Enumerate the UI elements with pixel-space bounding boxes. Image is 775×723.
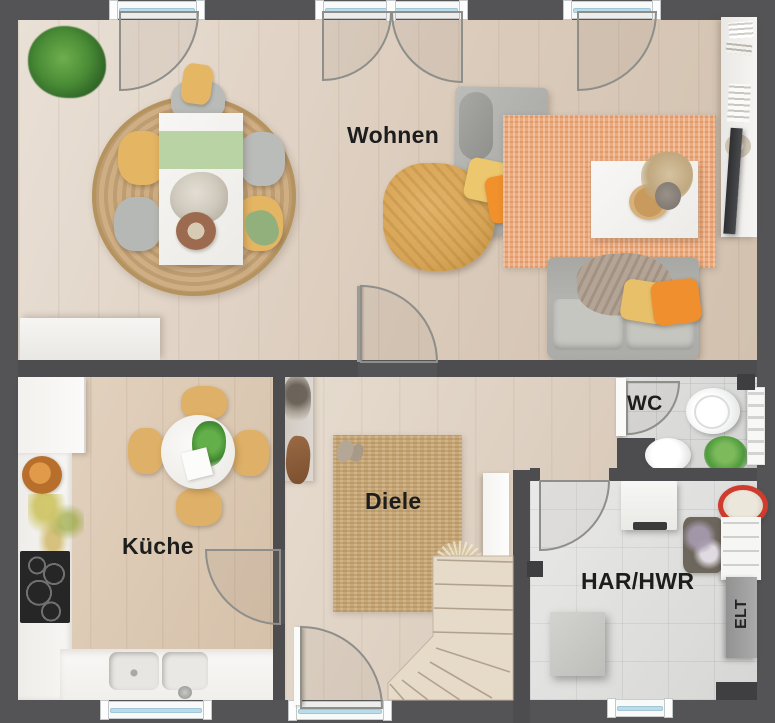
dried-grass-plant bbox=[433, 541, 485, 589]
kitchen-chair-right bbox=[231, 430, 269, 476]
bottom-right-recess bbox=[716, 682, 757, 700]
cooktop bbox=[20, 551, 70, 623]
books-stack-small bbox=[725, 41, 752, 56]
sink-left bbox=[109, 652, 159, 690]
fruit-bowl-table bbox=[176, 212, 216, 250]
window-glass bbox=[110, 708, 202, 713]
washing-machine-door bbox=[633, 522, 667, 530]
har-window bbox=[610, 700, 670, 716]
towel-radiator bbox=[747, 387, 765, 465]
entrance-door-leaf bbox=[294, 627, 302, 705]
kitchen-chair-bottom bbox=[176, 488, 222, 526]
vase bbox=[655, 182, 681, 210]
room-label-wc: WC bbox=[627, 392, 663, 416]
stair-wall-niche bbox=[527, 561, 543, 577]
wall-kitchen-upper bbox=[273, 377, 285, 550]
room-label-elt: ELT bbox=[733, 594, 751, 634]
room-label-kueche: Küche bbox=[122, 533, 194, 560]
gray-appliance bbox=[550, 612, 605, 676]
dried-flowers-rack bbox=[283, 375, 311, 423]
table-runner bbox=[159, 131, 243, 169]
wall-kitchen-lower bbox=[273, 624, 285, 700]
fridge-cabinet bbox=[18, 377, 86, 453]
room-label-wohnen: Wohnen bbox=[347, 122, 439, 149]
kitchen-chair-left bbox=[128, 428, 164, 474]
toilet-seat-line bbox=[694, 395, 730, 429]
floor-plan: Wohnen Küche Diele WC HAR/HWR ELT bbox=[0, 0, 775, 723]
terrace-door-center-post bbox=[386, 0, 396, 22]
room-label-diele: Diele bbox=[365, 488, 421, 515]
hanging-plant bbox=[28, 494, 84, 556]
wall-har-top-right bbox=[609, 468, 757, 481]
wall-har-top-left bbox=[530, 468, 540, 481]
window-top-right bbox=[566, 2, 658, 18]
faucet bbox=[178, 686, 192, 699]
storage-shelf bbox=[721, 517, 761, 580]
books-stack-middle bbox=[727, 83, 751, 122]
wall-main-right bbox=[437, 360, 757, 377]
orange-pillow-sofa bbox=[649, 277, 702, 327]
window-glass bbox=[617, 706, 663, 711]
entrance-door-frame bbox=[291, 702, 389, 719]
sink-right bbox=[162, 652, 208, 690]
kitchen-window bbox=[103, 702, 209, 718]
dining-chair-right bbox=[239, 132, 285, 186]
wc-door-leaf bbox=[616, 378, 626, 436]
wohnen-diele-door-leaf bbox=[357, 286, 362, 362]
fruit-bowl-counter bbox=[22, 456, 62, 494]
room-label-har-hwr: HAR/HWR bbox=[581, 568, 694, 595]
daybed-bolster bbox=[459, 92, 493, 160]
window-glass bbox=[119, 8, 195, 13]
wall-stairs-har bbox=[513, 470, 530, 723]
window-glass bbox=[573, 8, 651, 13]
window-top-left bbox=[112, 2, 202, 18]
clothes-basket bbox=[683, 517, 723, 573]
sideboard-wohnen bbox=[20, 318, 160, 360]
potted-plant-icon bbox=[28, 26, 106, 98]
books-stack-top bbox=[728, 21, 753, 39]
dining-chair-bottom-left bbox=[114, 197, 162, 251]
wc-corner-box bbox=[737, 374, 755, 390]
wall-main-left bbox=[18, 360, 358, 377]
window-glass bbox=[298, 709, 382, 714]
wc-sink bbox=[645, 438, 691, 472]
har-door-leaf bbox=[483, 473, 509, 567]
jute-rug bbox=[333, 435, 462, 612]
